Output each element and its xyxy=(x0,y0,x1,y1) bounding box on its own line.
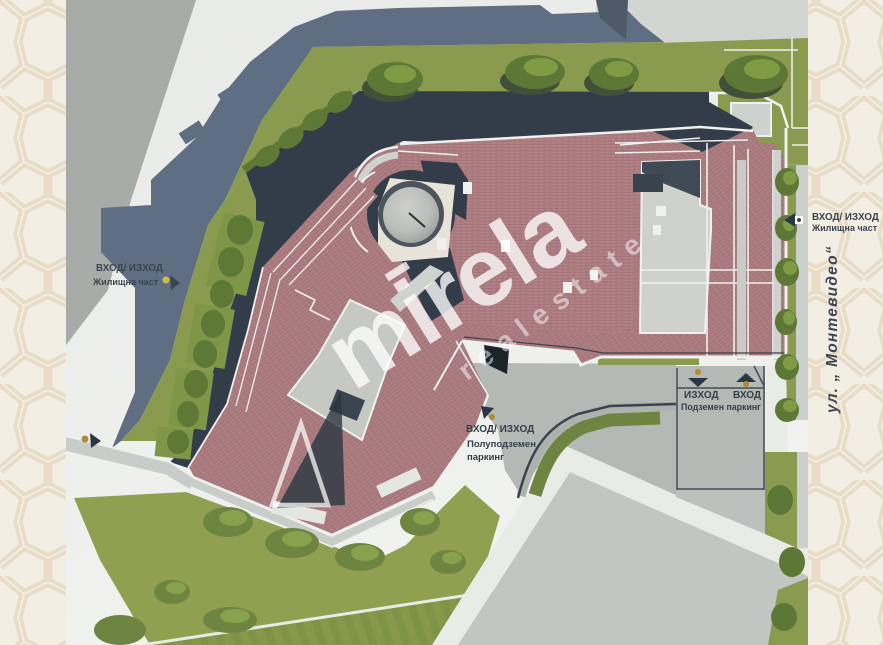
svg-text:Полуподземен: Полуподземен xyxy=(467,439,536,450)
svg-text:ВХОД/ ИЗХОД: ВХОД/ ИЗХОД xyxy=(466,424,534,435)
svg-text:Жилищна част: Жилищна част xyxy=(92,277,159,287)
svg-text:ВХОД: ВХОД xyxy=(733,390,761,401)
svg-text:паркинг: паркинг xyxy=(467,452,504,463)
svg-text:Жилищна част: Жилищна част xyxy=(811,223,878,233)
svg-text:ВХОД/ ИЗХОД: ВХОД/ ИЗХОД xyxy=(96,263,163,274)
svg-text:ул. „ Монтевидео“: ул. „ Монтевидео“ xyxy=(824,245,841,414)
svg-text:Подземен паркинг: Подземен паркинг xyxy=(681,402,761,412)
svg-text:ИЗХОД: ИЗХОД xyxy=(684,390,719,401)
svg-text:ВХОД/ ИЗХОД: ВХОД/ ИЗХОД xyxy=(812,212,879,223)
